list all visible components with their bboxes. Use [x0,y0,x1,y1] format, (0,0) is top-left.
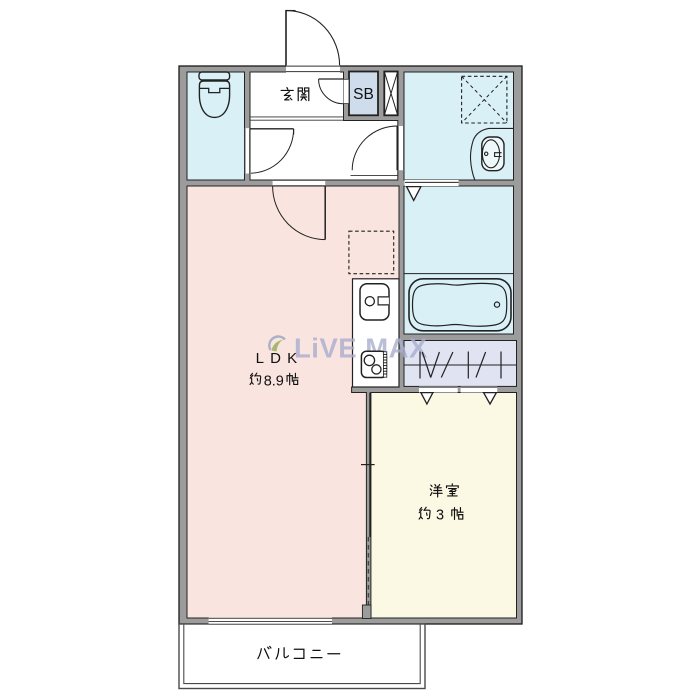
svg-text:3: 3 [436,507,444,523]
svg-text:LDK: LDK [256,350,304,367]
svg-text:8.9: 8.9 [264,374,284,390]
svg-text:SB: SB [353,86,374,103]
